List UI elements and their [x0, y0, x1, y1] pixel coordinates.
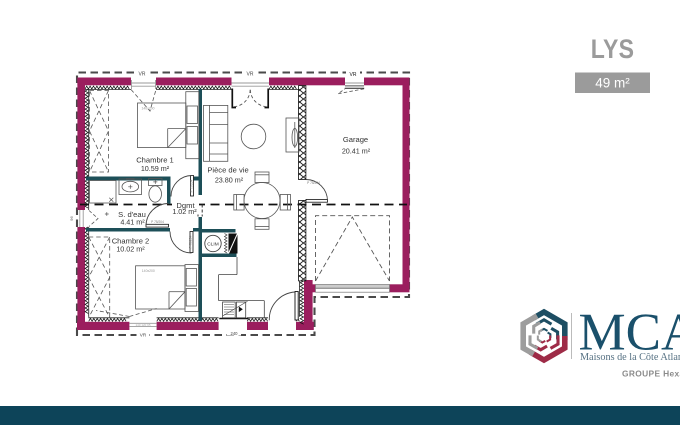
svg-text:VR: VR — [247, 71, 254, 77]
svg-text:P 75/204: P 75/204 — [189, 235, 193, 248]
svg-text:P 75/204: P 75/204 — [307, 181, 320, 185]
svg-text:VR: VR — [350, 72, 357, 78]
svg-text:140x200: 140x200 — [142, 106, 155, 110]
svg-text:10.59 m²: 10.59 m² — [141, 164, 170, 173]
svg-text:LYS: LYS — [591, 36, 634, 65]
svg-text:96: 96 — [69, 216, 74, 221]
svg-text:CLIM: CLIM — [207, 241, 218, 247]
svg-text:4.41 m²: 4.41 m² — [120, 217, 145, 226]
svg-text:23.80 m²: 23.80 m² — [215, 175, 244, 184]
svg-text:VR: VR — [139, 71, 146, 77]
svg-text:1.02 m²: 1.02 m² — [172, 207, 197, 216]
svg-text:20.41 m²: 20.41 m² — [342, 146, 371, 155]
svg-text:Garage: Garage — [343, 135, 368, 144]
svg-text:10.02 m²: 10.02 m² — [116, 244, 145, 253]
svg-text:GROUPE Hexaom: GROUPE Hexaom — [622, 369, 680, 379]
svg-text:P 75/204: P 75/204 — [151, 220, 164, 224]
svg-text:VR: VR — [140, 333, 147, 338]
svg-text:140x200: 140x200 — [142, 269, 155, 273]
svg-text:49 m²: 49 m² — [595, 76, 630, 91]
svg-text:P 75/204: P 75/204 — [190, 179, 194, 192]
svg-text:140 120 95: 140 120 95 — [135, 323, 150, 327]
svg-text:Maisons de la Côte Atlantique: Maisons de la Côte Atlantique — [580, 352, 680, 363]
svg-text:240: 240 — [231, 331, 239, 336]
svg-text:Pièce de vie: Pièce de vie — [207, 166, 248, 175]
